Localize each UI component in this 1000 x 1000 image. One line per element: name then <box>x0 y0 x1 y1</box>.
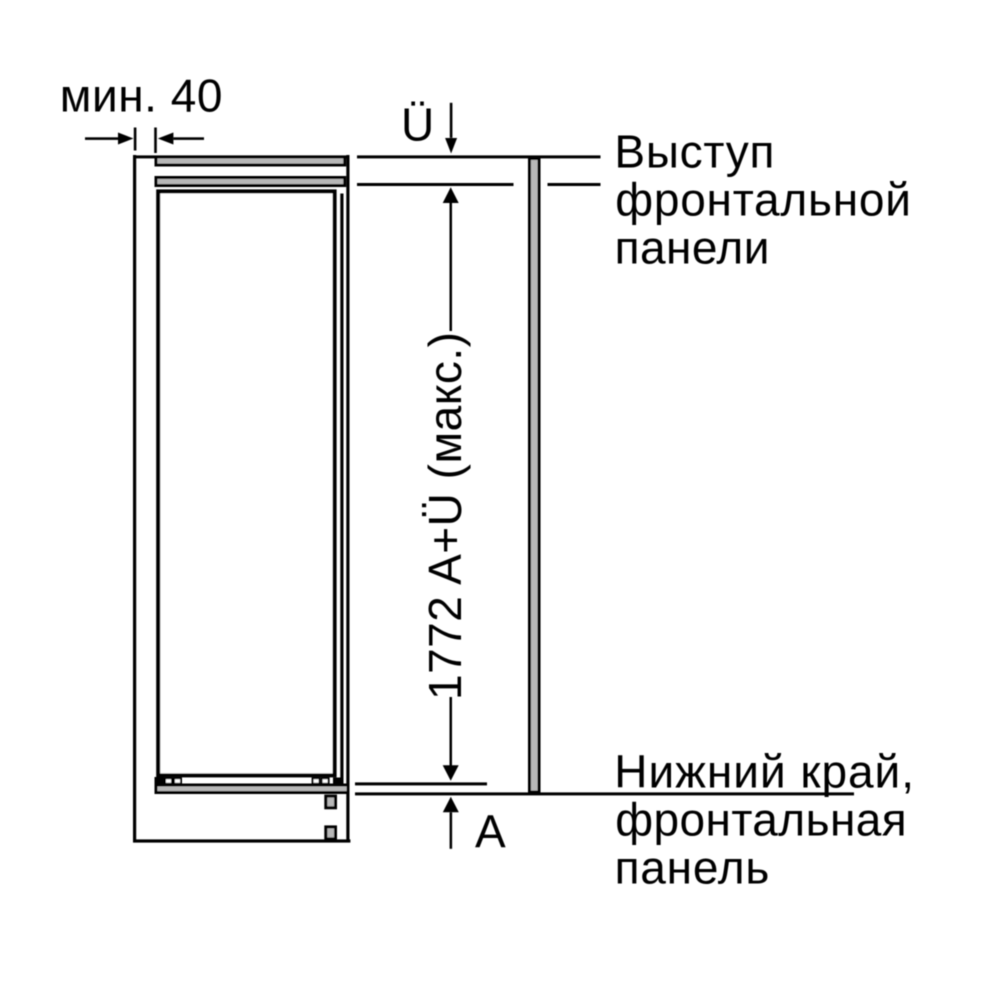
svg-text:A: A <box>475 806 506 858</box>
svg-text:1772 A+Ü (макс.): 1772 A+Ü (макс.) <box>419 332 471 700</box>
svg-text:фронтальной: фронтальной <box>615 174 911 226</box>
svg-text:панели: панели <box>615 222 770 274</box>
svg-text:панель: панель <box>615 842 770 894</box>
svg-text:мин. 40: мин. 40 <box>60 70 223 122</box>
svg-text:фронтальная: фронтальная <box>615 794 907 846</box>
svg-text:Ü: Ü <box>401 99 434 151</box>
svg-text:Выступ: Выступ <box>614 126 774 178</box>
svg-text:Нижний край,: Нижний край, <box>614 746 914 798</box>
